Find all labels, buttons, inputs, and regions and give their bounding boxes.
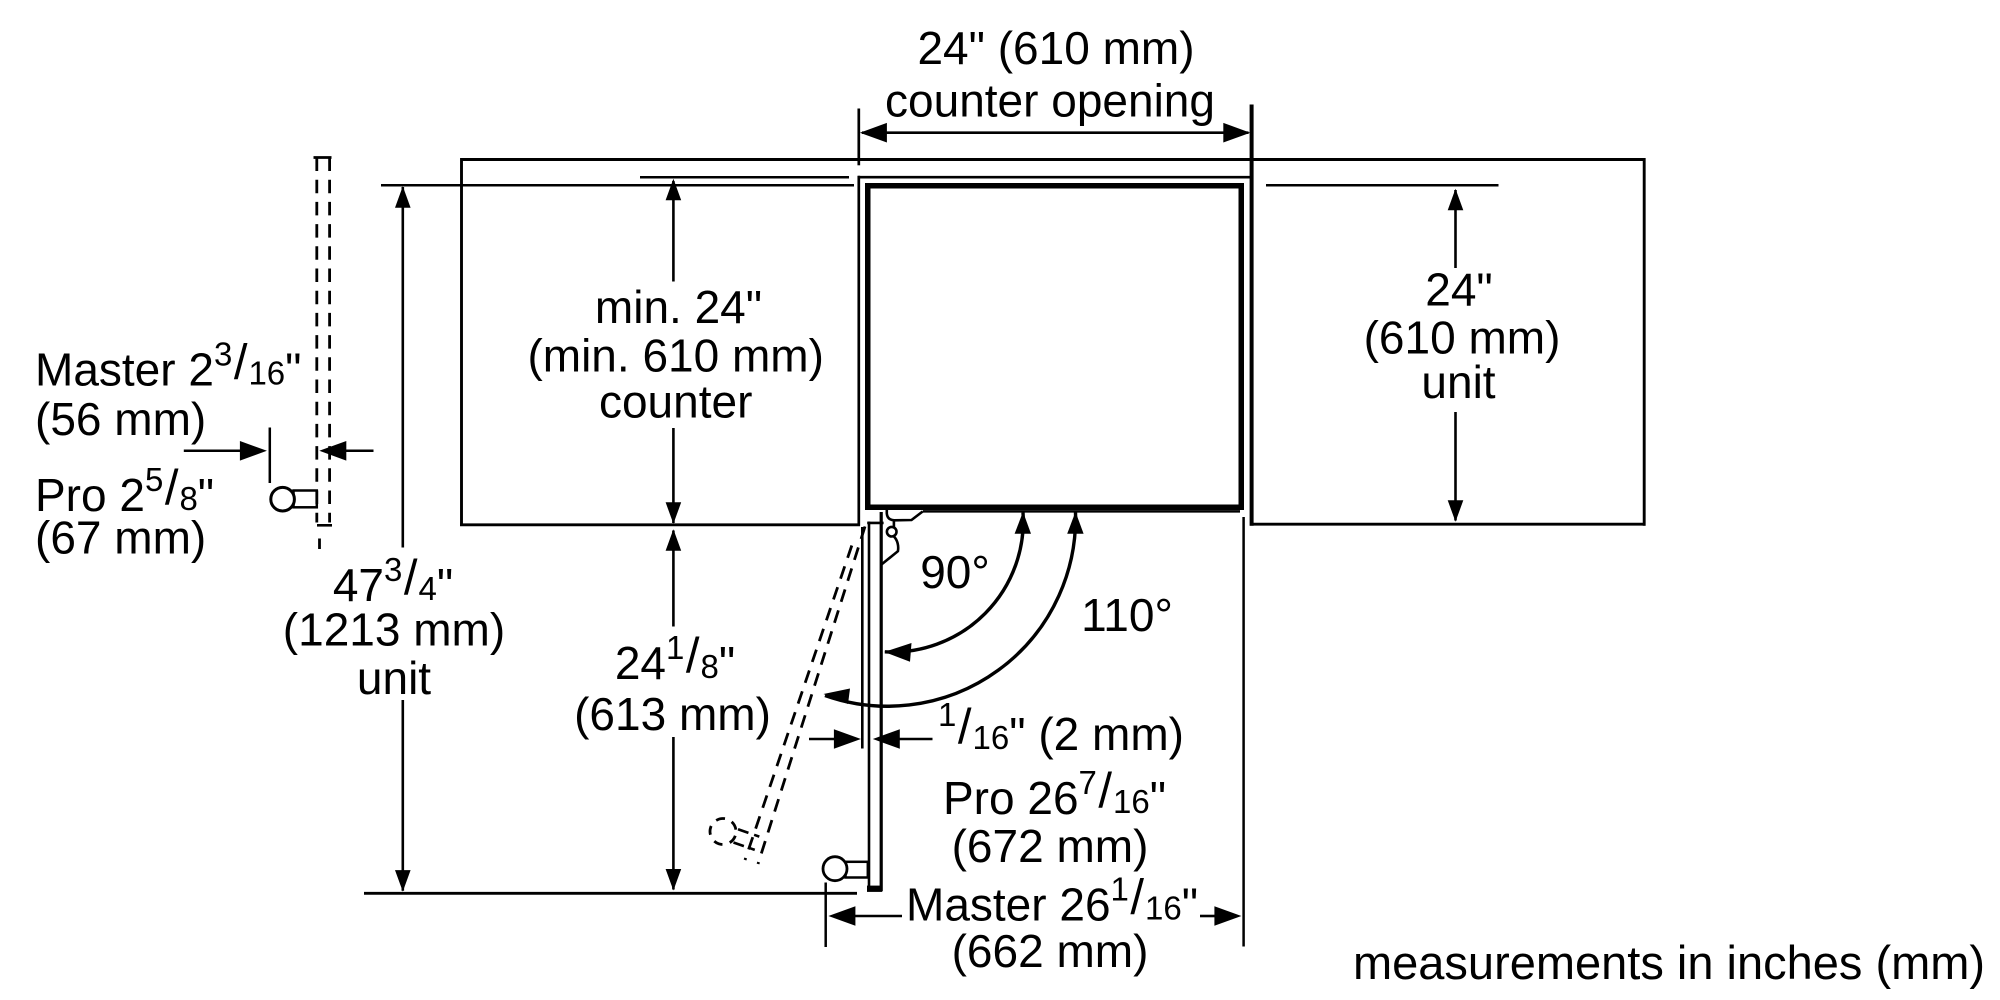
svg-text:counter: counter [599, 376, 752, 428]
svg-text:(672 mm): (672 mm) [952, 820, 1149, 872]
svg-text:min. 24": min. 24" [595, 281, 762, 333]
svg-text:110°: 110° [1081, 589, 1173, 641]
svg-text:measurements in inches (mm): measurements in inches (mm) [1353, 936, 1985, 989]
svg-text:counter opening: counter opening [885, 75, 1215, 127]
svg-text:(1213 mm): (1213 mm) [283, 604, 505, 656]
svg-text:(56 mm): (56 mm) [35, 393, 206, 445]
svg-text:(min. 610 mm): (min. 610 mm) [527, 330, 823, 382]
svg-text:unit: unit [1421, 356, 1495, 408]
svg-text:90°: 90° [920, 546, 990, 598]
svg-text:(613 mm): (613 mm) [574, 688, 771, 740]
svg-text:(662 mm): (662 mm) [952, 925, 1149, 977]
svg-text:24" (610 mm): 24" (610 mm) [917, 22, 1194, 74]
svg-text:(67 mm): (67 mm) [35, 512, 206, 564]
svg-text:24": 24" [1425, 264, 1493, 316]
svg-text:unit: unit [357, 652, 431, 704]
